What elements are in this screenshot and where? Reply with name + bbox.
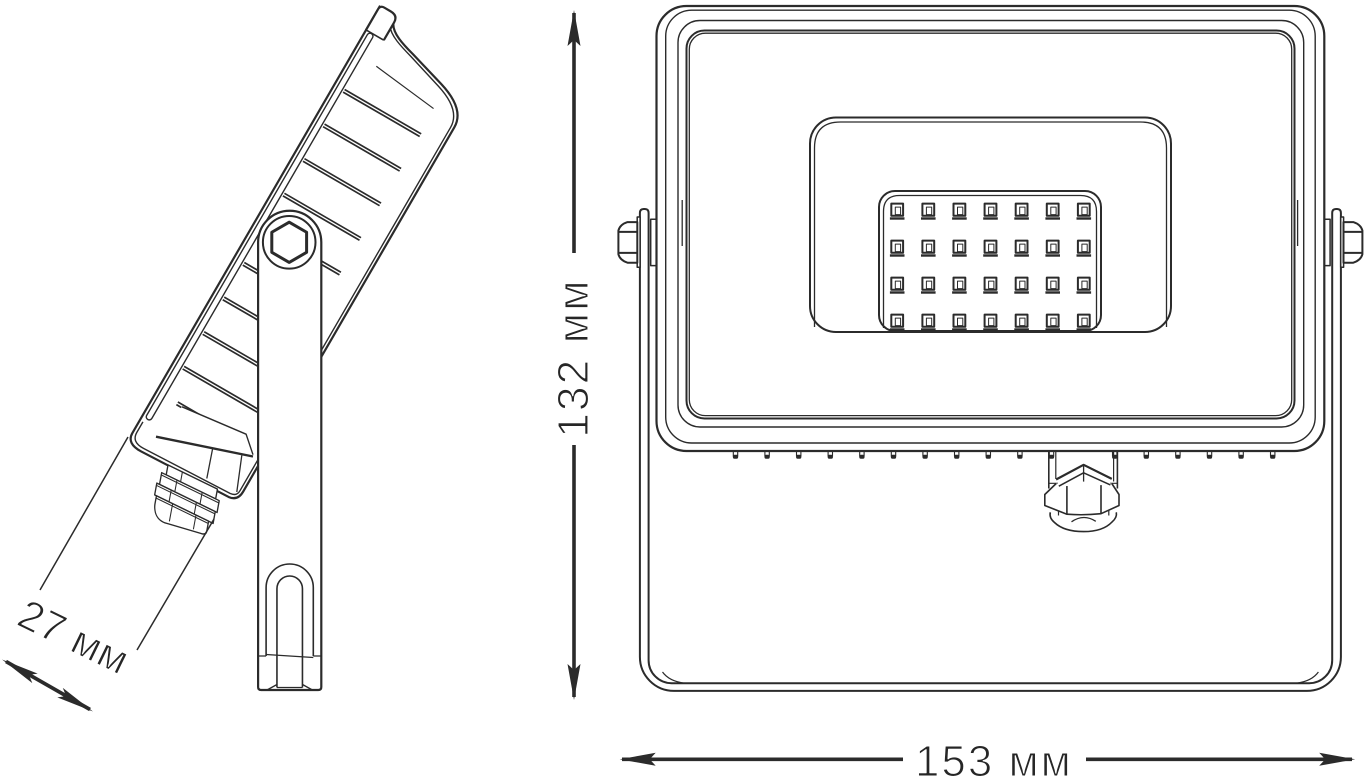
- svg-text:27 мм: 27 мм: [11, 590, 137, 684]
- svg-text:153 мм: 153 мм: [915, 738, 1073, 784]
- svg-text:132 мм: 132 мм: [549, 278, 598, 437]
